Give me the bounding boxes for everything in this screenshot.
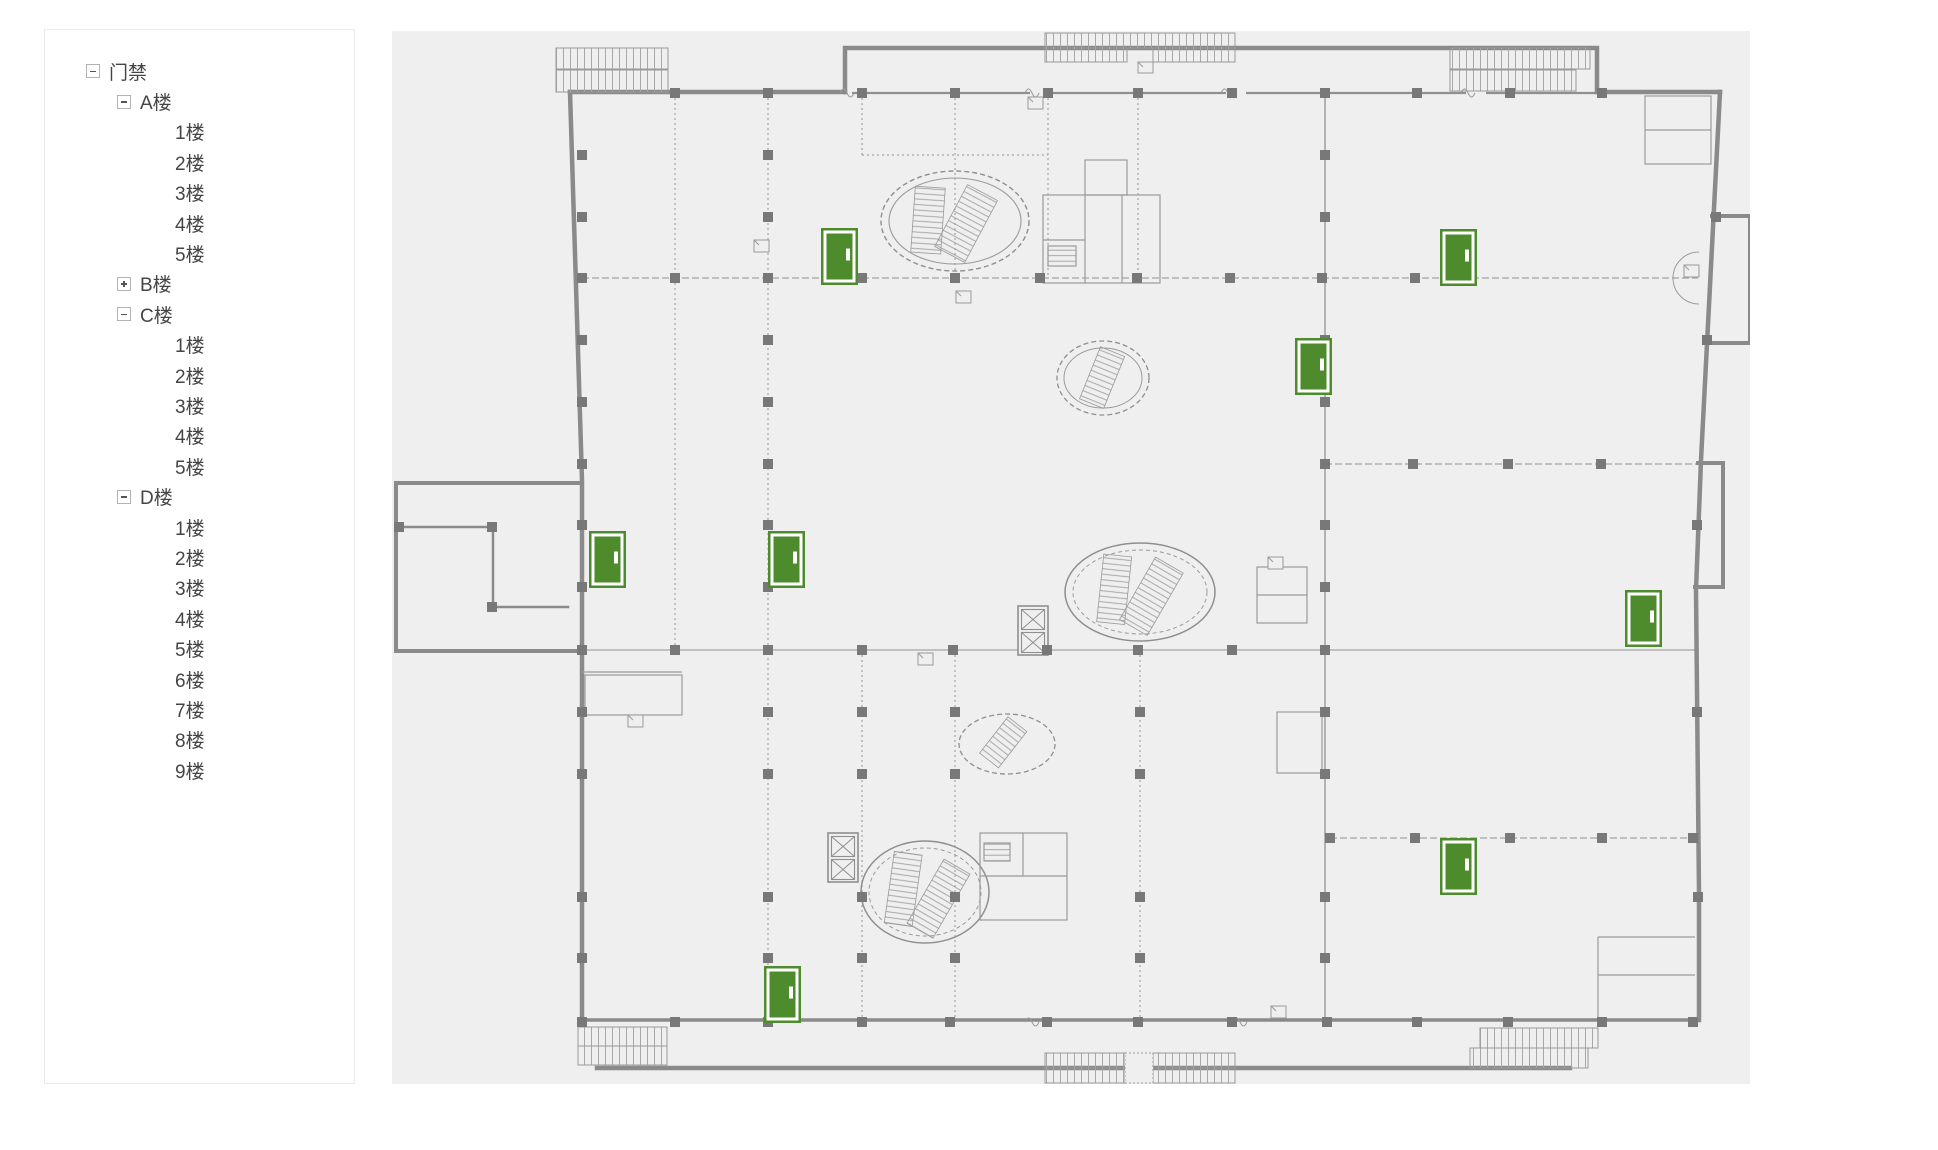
column-marker <box>763 892 773 902</box>
door-2-icon[interactable] <box>1440 229 1477 286</box>
column-marker <box>950 953 960 963</box>
tree-item-label: 4楼 <box>175 210 205 237</box>
floorplan-svg <box>392 31 1750 1084</box>
column-marker <box>577 459 587 469</box>
tree-item-label: 4楼 <box>175 605 205 632</box>
column-marker <box>1035 273 1045 283</box>
tree-item-label: B楼 <box>140 270 172 297</box>
column-marker <box>1320 397 1330 407</box>
tree-item-building-a-floor-5[interactable]: 5楼 <box>45 238 354 268</box>
tree-item-label: D楼 <box>140 483 173 510</box>
tree-item-building-d-floor-2[interactable]: 2楼 <box>45 542 354 572</box>
column-marker <box>857 707 867 717</box>
column-marker <box>1597 1017 1607 1027</box>
tree-item-building-d-floor-7[interactable]: 7楼 <box>45 694 354 724</box>
tree-item-label: 7楼 <box>175 696 205 723</box>
tree-item-label: 2楼 <box>175 149 205 176</box>
door-3-icon[interactable] <box>1295 338 1332 395</box>
column-marker <box>950 88 960 98</box>
column-marker <box>1693 892 1703 902</box>
column-marker <box>577 273 587 283</box>
column-marker <box>763 520 773 530</box>
column-marker <box>1320 953 1330 963</box>
column-marker <box>1325 833 1335 843</box>
tree-item-building-c-floor-3[interactable]: 3楼 <box>45 390 354 420</box>
expander-minus-icon[interactable] <box>117 490 131 504</box>
floorplan-canvas <box>392 31 1750 1084</box>
column-marker <box>950 769 960 779</box>
column-marker <box>763 459 773 469</box>
column-marker <box>1135 707 1145 717</box>
tree-item-label: 1楼 <box>175 118 205 145</box>
tree-item-building-c-floor-1[interactable]: 1楼 <box>45 330 354 360</box>
door-5-icon[interactable] <box>768 531 805 588</box>
door-7-icon[interactable] <box>1440 838 1477 895</box>
tree-item-label: 2楼 <box>175 544 205 571</box>
column-marker <box>1597 833 1607 843</box>
column-marker <box>763 397 773 407</box>
tree-item-label: 5楼 <box>175 240 205 267</box>
column-marker <box>857 953 867 963</box>
column-marker <box>1505 88 1515 98</box>
column-marker <box>950 273 960 283</box>
column-marker <box>577 1017 587 1027</box>
tree-item-access-control[interactable]: 门禁 <box>45 56 354 86</box>
column-marker <box>857 892 867 902</box>
tree-item-building-a[interactable]: A楼 <box>45 86 354 116</box>
column-marker <box>1410 273 1420 283</box>
column-marker <box>1135 953 1145 963</box>
tree-item-building-d-floor-8[interactable]: 8楼 <box>45 725 354 755</box>
column-marker <box>1227 1017 1237 1027</box>
column-marker <box>577 769 587 779</box>
column-marker <box>394 522 404 532</box>
column-marker <box>1505 833 1515 843</box>
column-marker <box>1042 645 1052 655</box>
tree-item-building-d-floor-9[interactable]: 9楼 <box>45 755 354 785</box>
tree-item-label: 3楼 <box>175 392 205 419</box>
column-marker <box>763 707 773 717</box>
column-marker <box>577 397 587 407</box>
door-6-icon[interactable] <box>1625 590 1662 647</box>
column-marker <box>1596 459 1606 469</box>
column-marker <box>487 602 497 612</box>
tree-item-label: 1楼 <box>175 514 205 541</box>
tree-item-building-d-floor-1[interactable]: 1楼 <box>45 512 354 542</box>
tree-item-building-b[interactable]: B楼 <box>45 269 354 299</box>
tree-item-building-d-floor-3[interactable]: 3楼 <box>45 573 354 603</box>
column-marker <box>1320 212 1330 222</box>
tree-item-building-a-floor-3[interactable]: 3楼 <box>45 178 354 208</box>
column-marker <box>1133 88 1143 98</box>
column-marker <box>577 212 587 222</box>
device-tree: 门禁A楼1楼2楼3楼4楼5楼B楼C楼1楼2楼3楼4楼5楼D楼1楼2楼3楼4楼5楼… <box>45 30 354 785</box>
column-marker <box>1320 459 1330 469</box>
tree-item-label: 8楼 <box>175 726 205 753</box>
column-marker <box>1597 88 1607 98</box>
column-marker <box>670 645 680 655</box>
column-marker <box>763 150 773 160</box>
column-marker <box>857 645 867 655</box>
tree-item-building-a-floor-4[interactable]: 4楼 <box>45 208 354 238</box>
column-marker <box>1412 1017 1422 1027</box>
column-marker <box>1503 1017 1513 1027</box>
column-marker <box>577 335 587 345</box>
expander-minus-icon[interactable] <box>86 64 100 78</box>
elevator-pair-bottom <box>828 833 858 882</box>
column-marker <box>1227 88 1237 98</box>
column-marker <box>950 707 960 717</box>
sidebar-tree-panel: 门禁A楼1楼2楼3楼4楼5楼B楼C楼1楼2楼3楼4楼5楼D楼1楼2楼3楼4楼5楼… <box>44 29 355 1084</box>
tree-item-label: 2楼 <box>175 362 205 389</box>
tree-item-building-a-floor-2[interactable]: 2楼 <box>45 147 354 177</box>
tree-item-label: 3楼 <box>175 179 205 206</box>
tree-item-label: 4楼 <box>175 422 205 449</box>
tree-item-building-a-floor-1[interactable]: 1楼 <box>45 117 354 147</box>
expander-minus-icon[interactable] <box>117 95 131 109</box>
tree-item-building-c-floor-4[interactable]: 4楼 <box>45 421 354 451</box>
column-marker <box>1135 769 1145 779</box>
tree-item-building-d-floor-6[interactable]: 6楼 <box>45 664 354 694</box>
column-marker <box>1322 1017 1332 1027</box>
door-1-icon[interactable] <box>821 228 858 285</box>
tree-item-building-d-floor-4[interactable]: 4楼 <box>45 603 354 633</box>
column-marker <box>1135 892 1145 902</box>
column-marker <box>1711 212 1721 222</box>
column-marker <box>1320 88 1330 98</box>
column-marker <box>1692 707 1702 717</box>
column-marker <box>670 273 680 283</box>
column-marker <box>577 150 587 160</box>
column-marker <box>857 273 867 283</box>
column-marker <box>950 892 960 902</box>
column-marker <box>763 212 773 222</box>
column-marker <box>1320 892 1330 902</box>
column-marker <box>857 1017 867 1027</box>
expander-plus-icon[interactable] <box>117 277 131 291</box>
column-marker <box>763 953 773 963</box>
column-marker <box>1225 273 1235 283</box>
tree-item-label: 3楼 <box>175 574 205 601</box>
column-marker <box>1132 273 1142 283</box>
column-marker <box>1412 88 1422 98</box>
column-marker <box>487 522 497 532</box>
tree-item-building-d-floor-5[interactable]: 5楼 <box>45 633 354 663</box>
column-marker <box>577 582 587 592</box>
tree-item-label: A楼 <box>140 88 172 115</box>
column-marker <box>1320 769 1330 779</box>
column-marker <box>1042 1017 1052 1027</box>
tree-item-label: 5楼 <box>175 453 205 480</box>
column-marker <box>1408 459 1418 469</box>
column-marker <box>857 88 867 98</box>
column-marker <box>670 1017 680 1027</box>
column-marker <box>945 1017 955 1027</box>
column-marker <box>577 645 587 655</box>
column-marker <box>1702 335 1712 345</box>
tree-item-building-c-floor-2[interactable]: 2楼 <box>45 360 354 390</box>
tree-item-label: 6楼 <box>175 666 205 693</box>
column-marker <box>1320 150 1330 160</box>
column-marker <box>763 335 773 345</box>
door-4-icon[interactable] <box>589 531 626 588</box>
tree-item-building-c[interactable]: C楼 <box>45 299 354 329</box>
column-marker <box>1692 520 1702 530</box>
column-marker <box>1317 273 1327 283</box>
column-marker <box>948 645 958 655</box>
column-marker <box>1320 520 1330 530</box>
tree-item-label: 1楼 <box>175 331 205 358</box>
door-8-icon[interactable] <box>764 966 801 1023</box>
column-marker <box>577 953 587 963</box>
column-marker <box>1503 459 1513 469</box>
column-marker <box>1227 645 1237 655</box>
tree-item-building-c-floor-5[interactable]: 5楼 <box>45 451 354 481</box>
tree-item-label: 门禁 <box>109 58 147 85</box>
column-marker <box>1043 88 1053 98</box>
tree-item-building-d[interactable]: D楼 <box>45 481 354 511</box>
column-marker <box>1133 1017 1143 1027</box>
column-marker <box>1688 1017 1698 1027</box>
column-marker <box>763 273 773 283</box>
column-marker <box>577 520 587 530</box>
column-marker <box>1320 582 1330 592</box>
column-marker <box>1410 833 1420 843</box>
column-marker <box>670 88 680 98</box>
column-marker <box>577 892 587 902</box>
tree-item-label: 5楼 <box>175 635 205 662</box>
column-marker <box>857 769 867 779</box>
column-marker <box>763 645 773 655</box>
expander-minus-icon[interactable] <box>117 307 131 321</box>
column-marker <box>1688 833 1698 843</box>
column-marker <box>1320 645 1330 655</box>
tree-item-label: 9楼 <box>175 757 205 784</box>
column-marker <box>1320 707 1330 717</box>
column-marker <box>763 88 773 98</box>
column-marker <box>577 707 587 717</box>
tree-item-label: C楼 <box>140 301 173 328</box>
column-marker <box>763 769 773 779</box>
column-marker <box>1133 645 1143 655</box>
